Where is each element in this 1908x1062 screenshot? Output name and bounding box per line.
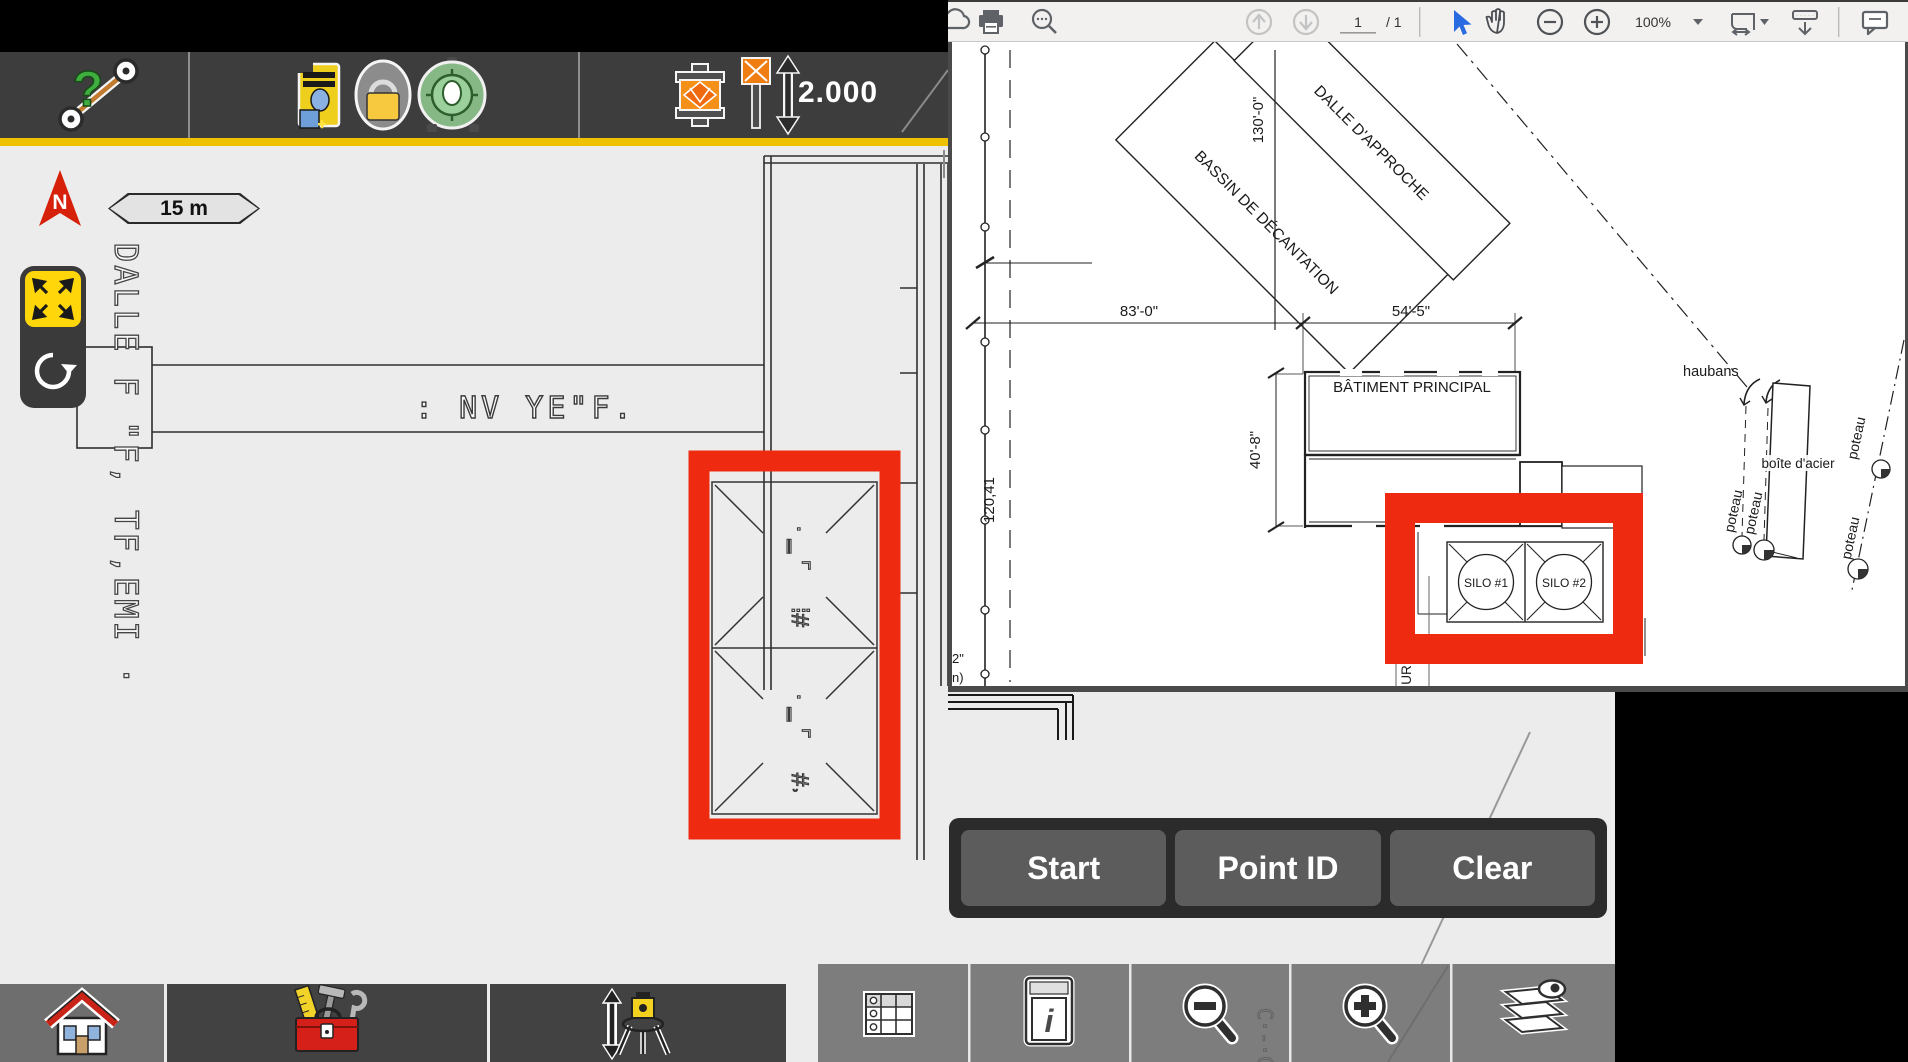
info-glyph: i	[1045, 1003, 1055, 1039]
dim-40: 40'-8"	[1247, 431, 1264, 469]
main-toolbar: ?	[0, 52, 948, 138]
partial-text-2in: 2"	[952, 651, 964, 666]
level-bubble-icon[interactable]	[419, 57, 485, 132]
north-arrow: N	[30, 168, 90, 234]
label-silo2: SILO #2	[1542, 576, 1586, 590]
map-zoom-out-icon[interactable]	[1186, 987, 1232, 1038]
rotate-view-button[interactable]	[25, 344, 81, 400]
map-zoom-in-icon[interactable]	[1346, 987, 1392, 1038]
silo-glyph: · ‗ ⌜	[786, 525, 813, 571]
select-tool-icon[interactable]	[1454, 10, 1472, 35]
print-icon[interactable]	[979, 10, 1003, 33]
toolbar-accent-bar	[0, 138, 948, 146]
label-poteau: poteau	[1741, 490, 1766, 535]
zoom-extents-button[interactable]	[25, 271, 81, 327]
point-table-icon[interactable]	[866, 994, 912, 1034]
comment-icon[interactable]	[1863, 12, 1887, 34]
clear-button[interactable]: Clear	[1390, 830, 1595, 906]
page-down-icon[interactable]	[1294, 10, 1318, 34]
lock-icon[interactable]	[356, 61, 410, 129]
fit-dropdown-caret[interactable]	[1760, 19, 1769, 25]
zoom-in-icon[interactable]	[1585, 10, 1609, 34]
layers-icon[interactable]	[1506, 981, 1565, 1033]
dim-54: 54'-5"	[1392, 303, 1430, 320]
partial-text-ur: UR	[1399, 665, 1414, 685]
pole-target-icon[interactable]	[742, 58, 770, 128]
label-poteau: poteau	[1838, 515, 1863, 560]
pdf-toolbar: 1 / 1	[948, 0, 1908, 42]
info-icon[interactable]: i	[1026, 978, 1072, 1044]
silo-glyph: #˒	[786, 773, 813, 794]
cloud-icon[interactable]	[948, 9, 969, 28]
action-button-bar: Start Point ID Clear	[949, 818, 1607, 918]
search-zoom-icon[interactable]	[1033, 10, 1056, 33]
zoom-out-icon[interactable]	[1538, 10, 1562, 34]
pdf-page[interactable]: BASSIN DE DÉCANTATION DALLE D'APPROCHE 1…	[952, 42, 1905, 686]
label-haubans: haubans	[1683, 364, 1739, 380]
zoom-dropdown-caret[interactable]	[1693, 19, 1703, 25]
scroll-mode-icon[interactable]	[1793, 11, 1817, 34]
label-batiment: BÂTIMENT PRINCIPAL	[1333, 379, 1491, 396]
north-label: N	[52, 191, 67, 214]
pdf-viewer-window: 1 / 1	[948, 0, 1908, 692]
silo-glyph: ⁞#	[786, 607, 813, 628]
prism-icon[interactable]	[676, 64, 724, 126]
page-number-input[interactable]: 1	[1354, 14, 1362, 30]
height-updown-icon[interactable]	[777, 56, 799, 134]
dim-130: 130'-0"	[1250, 97, 1267, 144]
map-cad-text-vertical: DALLE F "F, TF,EMI ·	[107, 243, 145, 688]
label-boite-acier: boîte d'acier	[1761, 456, 1835, 471]
instrument-icon[interactable]	[297, 62, 339, 128]
scale-label: 15 m	[160, 197, 208, 221]
zoom-level-value[interactable]: 100%	[1635, 14, 1671, 30]
stakeout-help-icon[interactable]: ?	[60, 60, 137, 130]
faint-cad-text: C·‐·C˪	[1253, 1008, 1277, 1062]
map-drawing: DALLE F "F, TF,EMI · : NV YE"F. · ‗ ⌜ ⁞#…	[0, 145, 948, 1062]
page-up-icon[interactable]	[1247, 10, 1271, 34]
tools-button[interactable]	[167, 984, 487, 1062]
dim-120: 120,41	[981, 477, 998, 523]
map-scale-bar: 15 m	[108, 193, 260, 224]
dim-83: 83'-0"	[1120, 303, 1158, 320]
pole-height-value: 2.000	[798, 76, 878, 110]
rotate-icon	[25, 344, 81, 400]
silo-glyph: · ‗ ⌜	[786, 693, 813, 739]
start-button[interactable]: Start	[961, 830, 1166, 906]
map-cad-text: : NV YE"F.	[415, 391, 636, 426]
hand-tool-icon[interactable]	[1487, 9, 1505, 33]
partial-text-n: n)	[952, 670, 964, 685]
point-id-button[interactable]: Point ID	[1175, 830, 1380, 906]
expand-arrows-icon	[25, 271, 81, 327]
label-poteau: poteau	[1844, 415, 1869, 460]
fit-width-icon[interactable]	[1732, 14, 1754, 35]
site-plan-drawing: BASSIN DE DÉCANTATION DALLE D'APPROCHE 1…	[952, 42, 1905, 686]
station-setup-button[interactable]	[490, 984, 786, 1062]
map-view-controls	[20, 266, 86, 408]
help-glyph: ?	[73, 61, 104, 117]
label-silo1: SILO #1	[1464, 576, 1508, 590]
screen: DALLE F "F, TF,EMI · : NV YE"F. · ‗ ⌜ ⁞#…	[0, 0, 1908, 1062]
page-total: / 1	[1386, 14, 1402, 30]
home-button[interactable]	[0, 984, 164, 1062]
map-tools-toolbar: C·‐·C˪	[818, 964, 1615, 1062]
